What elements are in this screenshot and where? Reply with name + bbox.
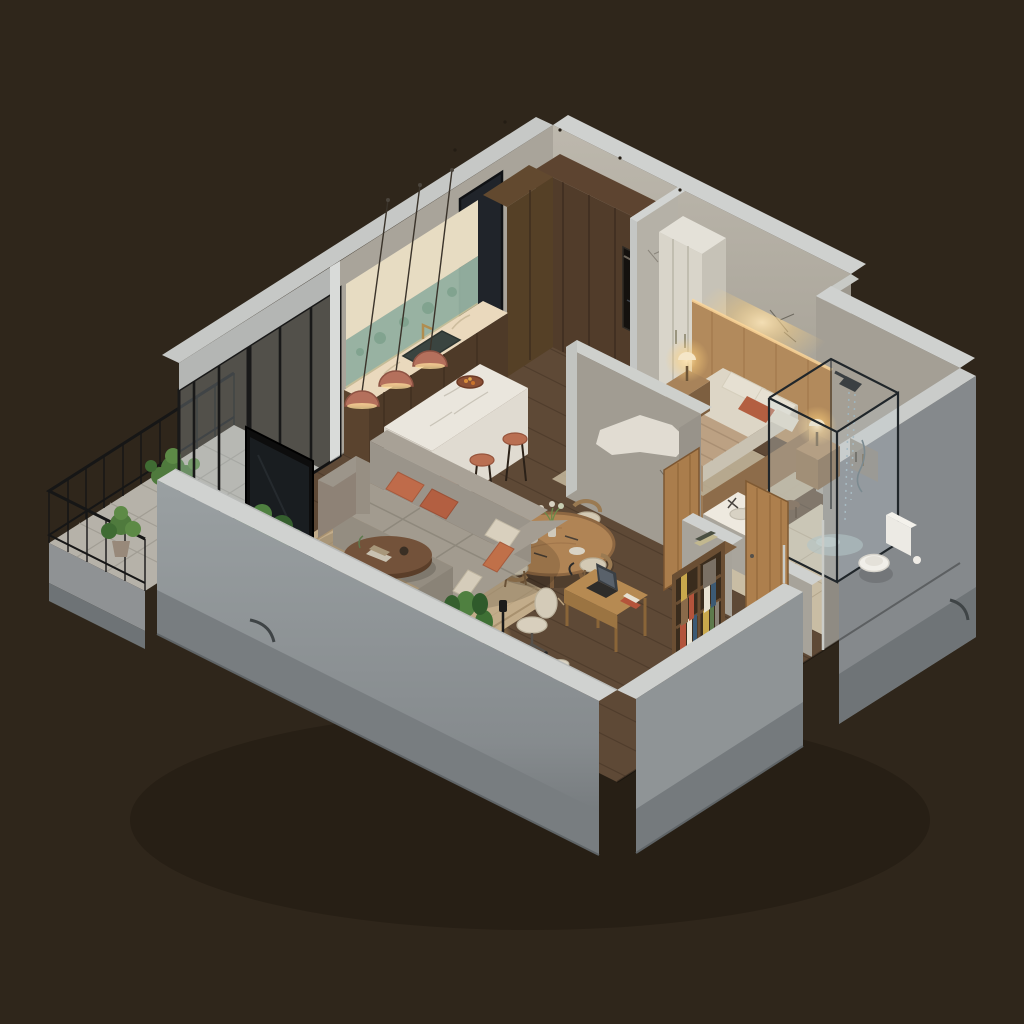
- decor-bowl: [400, 547, 409, 556]
- toilet-paper-holder: [913, 556, 921, 564]
- glazing-column: [330, 261, 340, 462]
- apartment-render: [0, 0, 1024, 1024]
- isometric-scene: [0, 0, 1024, 1024]
- plate: [569, 547, 585, 555]
